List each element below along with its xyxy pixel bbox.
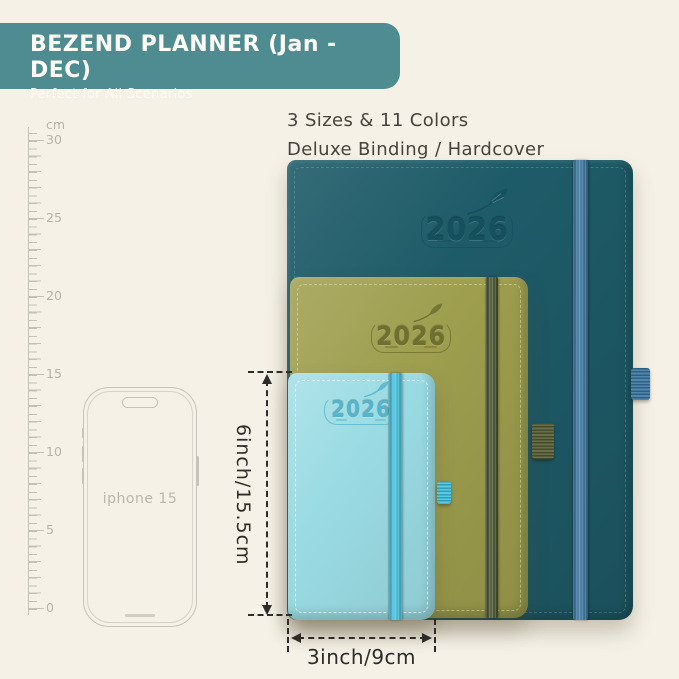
planner-small: 2026: [288, 373, 435, 620]
elastic-band-large: [573, 160, 588, 620]
arrowhead-down-icon: [262, 605, 272, 615]
pen-loop-small: [437, 481, 451, 504]
pen-loop-medium: [532, 423, 554, 459]
banner-title: BEZEND PLANNER (Jan - DEC): [30, 32, 400, 84]
elastic-band-medium: [486, 277, 498, 618]
home-indicator: [125, 614, 155, 617]
planner-small-cover: 2026: [288, 373, 435, 620]
logo-dash: [336, 419, 347, 421]
elastic-band-small: [389, 373, 402, 620]
ruler-label-20: 20: [46, 288, 62, 303]
ruler-label-25: 25: [46, 210, 62, 225]
phone-inner-border: [87, 391, 193, 623]
ruler-ticks-major: [29, 140, 44, 610]
phone-side-button: [82, 468, 85, 484]
year-logo: 2026: [421, 190, 513, 248]
logo-dash: [482, 240, 497, 242]
arrowhead-right-icon: [422, 633, 432, 643]
phone-side-button: [82, 428, 85, 438]
dynamic-island: [122, 397, 158, 408]
height-dimension-arrow: [266, 380, 268, 608]
pen-loop-large: [631, 368, 650, 400]
ruler-label-5: 5: [46, 522, 54, 537]
arrowhead-up-icon: [262, 374, 272, 384]
phone-side-button: [196, 456, 199, 486]
year-emboss: 2026: [425, 212, 510, 248]
banner-subtitle: Perfect for All Scenarios: [30, 87, 400, 102]
dimension-cap: [248, 371, 292, 373]
ruler-unit-label: cm: [46, 117, 65, 132]
product-infographic: BEZEND PLANNER (Jan - DEC) Perfect for A…: [0, 0, 679, 679]
phone-outline: iphone 15: [83, 387, 197, 627]
ruler-label-15: 15: [46, 366, 62, 381]
arrowhead-left-icon: [291, 633, 301, 643]
width-dimension-arrow: [298, 637, 426, 639]
phone-side-button: [82, 446, 85, 462]
year-emboss: 2026: [374, 321, 448, 353]
headline: 3 Sizes & 11 Colors Deluxe Binding / Har…: [287, 106, 544, 164]
feather-icon: [411, 303, 443, 323]
logo-dash: [424, 346, 437, 348]
logo-dash: [437, 240, 452, 242]
height-dimension-label: 6inch/15.5cm: [230, 382, 256, 608]
ruler-label-30: 30: [46, 132, 62, 147]
phone-label: iphone 15: [84, 491, 196, 507]
product-banner: BEZEND PLANNER (Jan - DEC) Perfect for A…: [0, 23, 400, 89]
logo-dash: [375, 419, 386, 421]
year-logo: 2026: [324, 381, 398, 425]
ruler-label-0: 0: [46, 600, 54, 615]
headline-line1: 3 Sizes & 11 Colors: [287, 106, 544, 135]
ruler-label-10: 10: [46, 444, 62, 459]
width-dimension-label: 3inch/9cm: [287, 645, 436, 669]
year-logo: 2026: [371, 303, 451, 353]
logo-dash: [385, 346, 398, 348]
